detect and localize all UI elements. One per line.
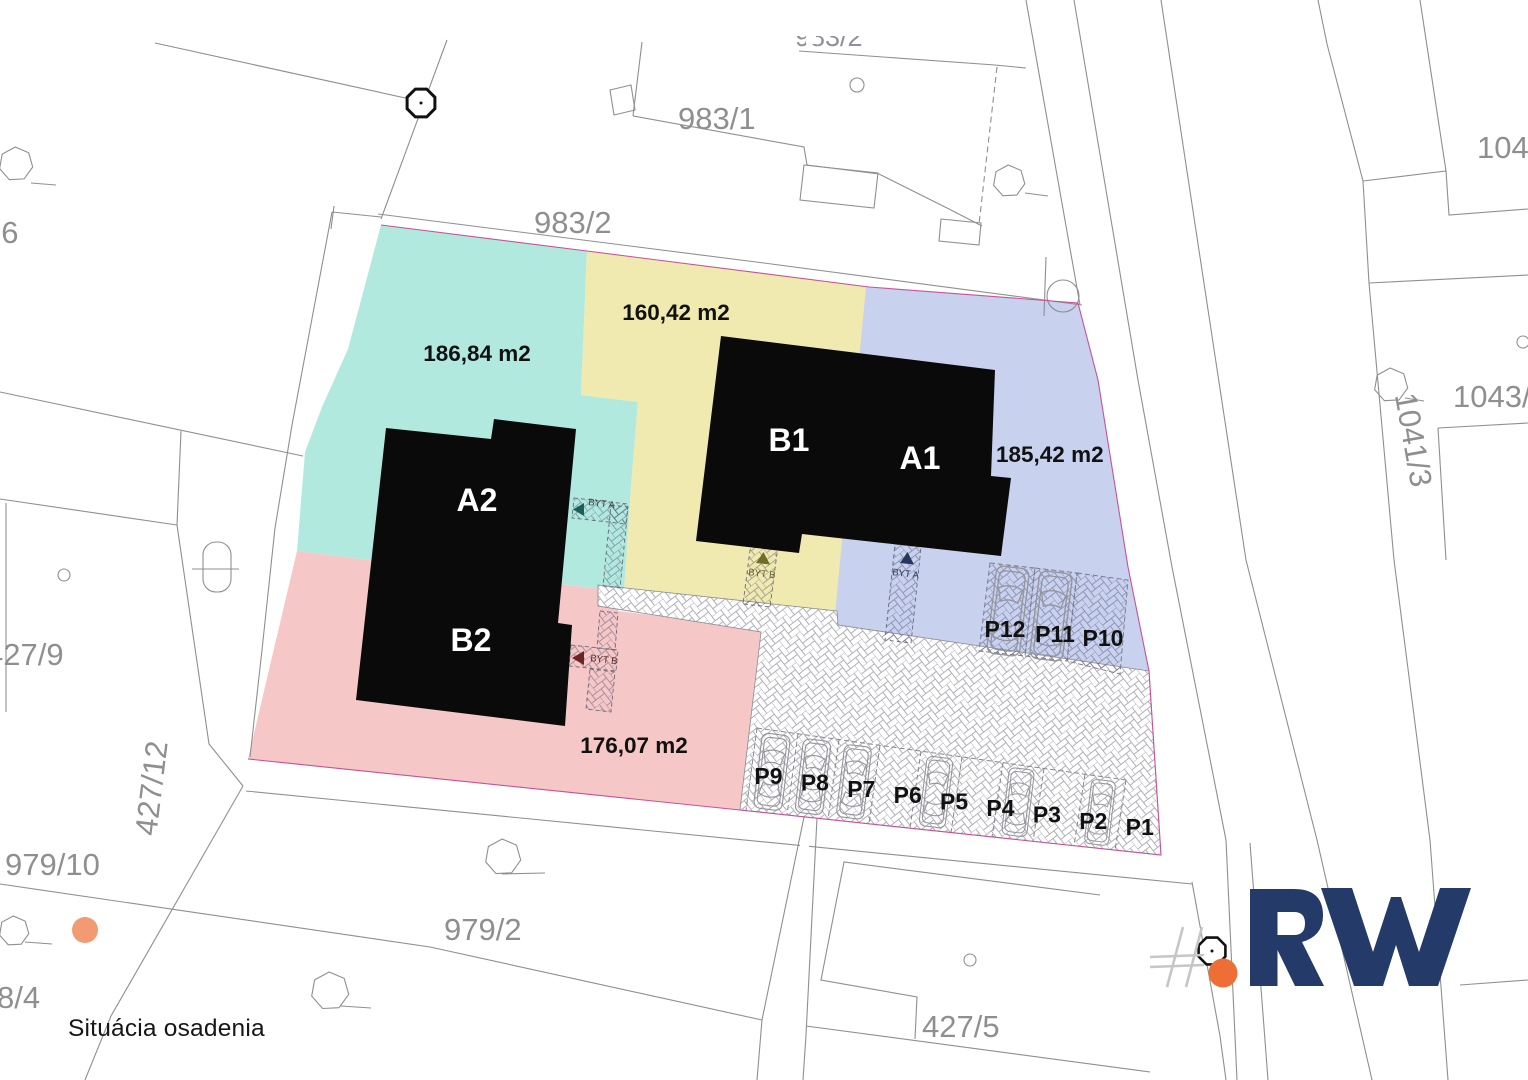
svg-text:P4: P4 bbox=[986, 795, 1014, 821]
svg-text:176,07 m2: 176,07 m2 bbox=[580, 733, 688, 758]
svg-text:P3: P3 bbox=[1033, 801, 1061, 827]
svg-text:979/2: 979/2 bbox=[444, 912, 522, 947]
svg-text:B2: B2 bbox=[451, 622, 492, 658]
svg-text:P12: P12 bbox=[985, 616, 1026, 642]
svg-text:427/5: 427/5 bbox=[922, 1009, 1000, 1044]
svg-text:983/2: 983/2 bbox=[534, 205, 612, 240]
svg-text:P10: P10 bbox=[1083, 625, 1124, 651]
svg-text:427/9: 427/9 bbox=[0, 637, 64, 672]
svg-text:983/1: 983/1 bbox=[678, 101, 756, 136]
svg-text:185,42 m2: 185,42 m2 bbox=[996, 442, 1104, 467]
svg-text:979/10: 979/10 bbox=[5, 847, 100, 882]
svg-text:P6: P6 bbox=[894, 782, 922, 808]
svg-text:1043/1: 1043/1 bbox=[1453, 379, 1528, 414]
svg-text:P5: P5 bbox=[940, 789, 968, 815]
svg-text:P7: P7 bbox=[847, 776, 875, 802]
svg-text:P1: P1 bbox=[1126, 814, 1154, 840]
svg-text:Situácia osadenia: Situácia osadenia bbox=[68, 1015, 265, 1042]
svg-text:B1: B1 bbox=[769, 422, 810, 458]
svg-text:P2: P2 bbox=[1079, 808, 1107, 834]
svg-text:A1: A1 bbox=[900, 440, 941, 476]
svg-text:8/4: 8/4 bbox=[0, 980, 40, 1015]
svg-text:1045: 1045 bbox=[1477, 130, 1528, 165]
svg-text:160,42 m2: 160,42 m2 bbox=[622, 300, 730, 325]
svg-text:96: 96 bbox=[0, 215, 18, 250]
svg-text:A2: A2 bbox=[457, 482, 498, 518]
svg-text:P9: P9 bbox=[754, 763, 782, 789]
svg-text:P8: P8 bbox=[801, 769, 829, 795]
svg-text:186,84 m2: 186,84 m2 bbox=[423, 341, 531, 366]
svg-text:P11: P11 bbox=[1035, 621, 1075, 647]
